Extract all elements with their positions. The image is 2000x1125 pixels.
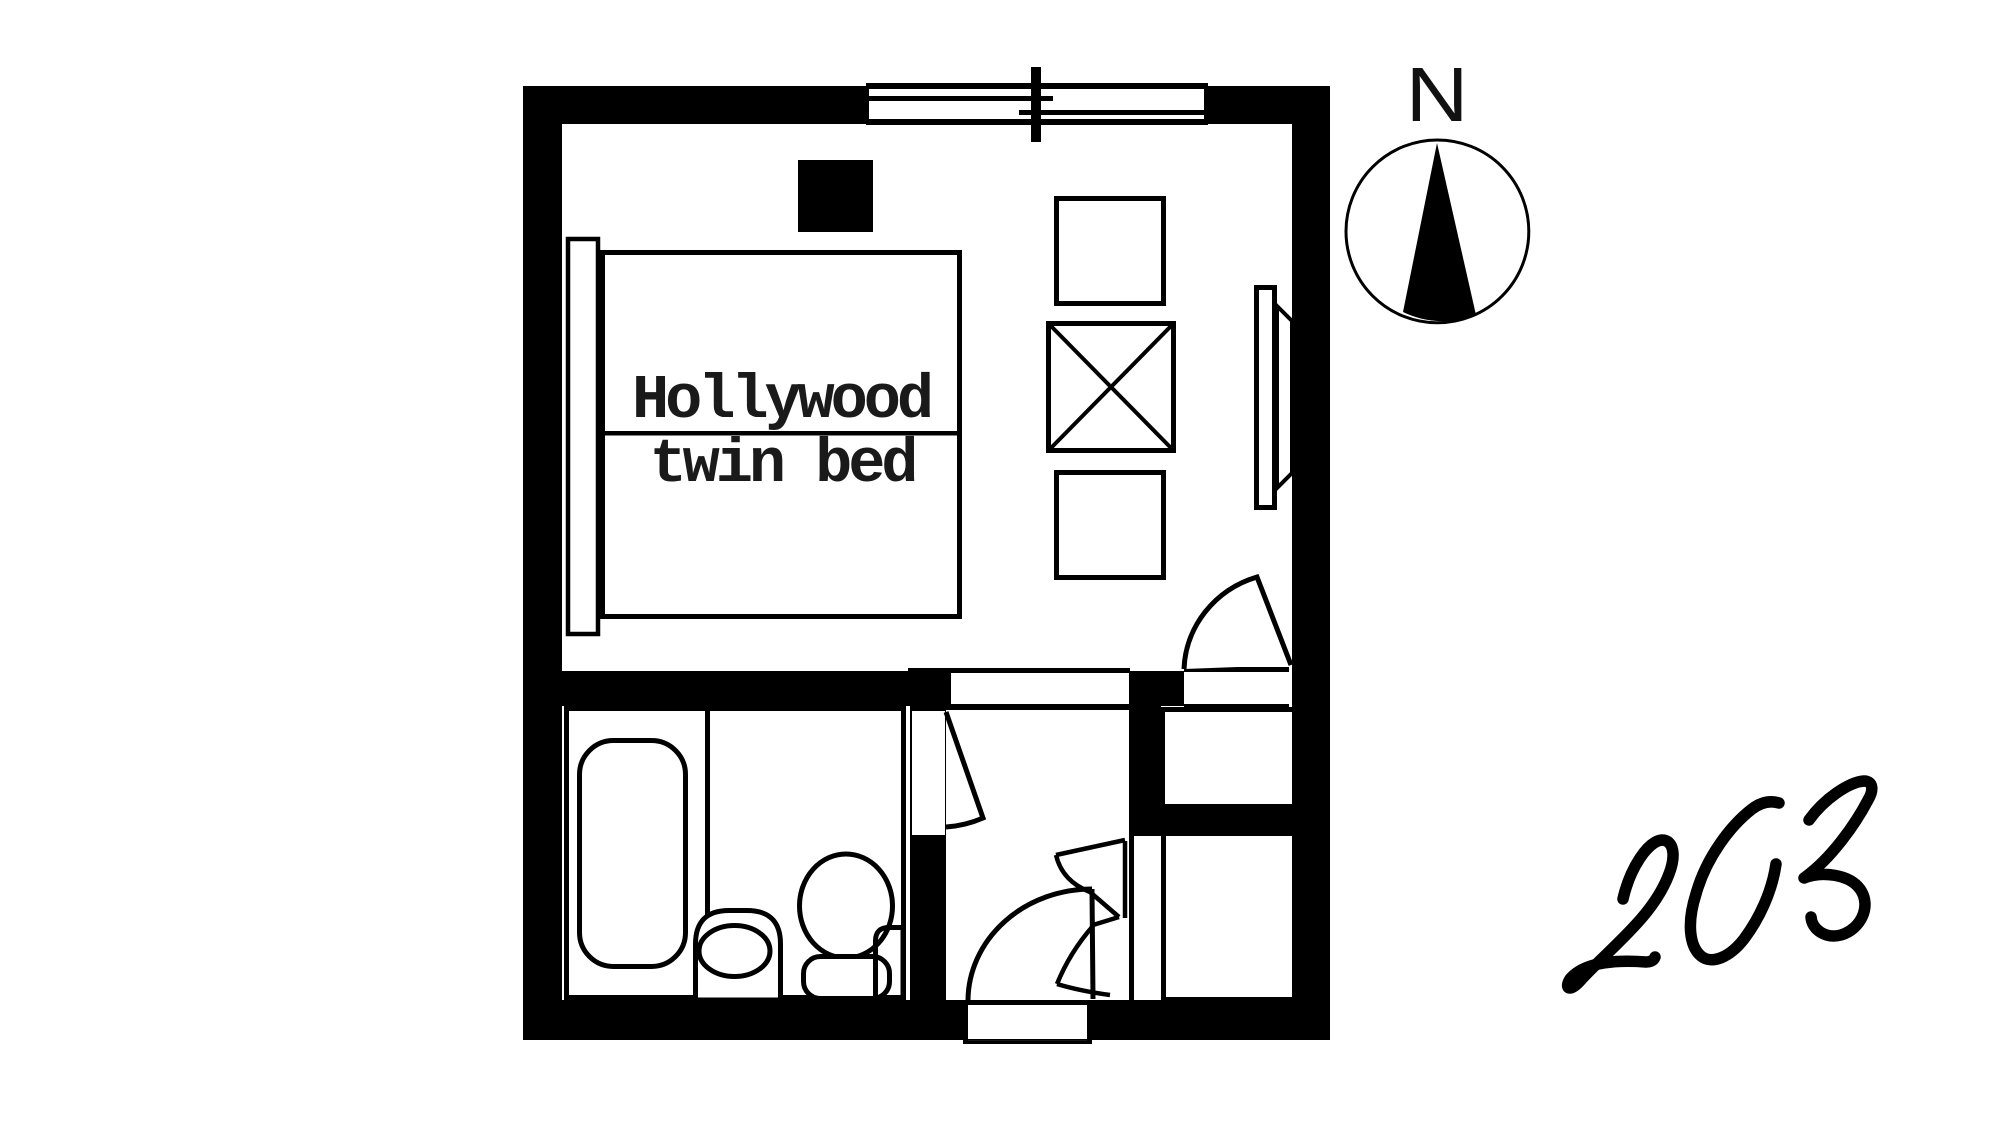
- svg-text:Hollywood: Hollywood: [632, 365, 930, 436]
- svg-text:twin bed: twin bed: [650, 429, 915, 500]
- svg-text:N: N: [1406, 53, 1469, 138]
